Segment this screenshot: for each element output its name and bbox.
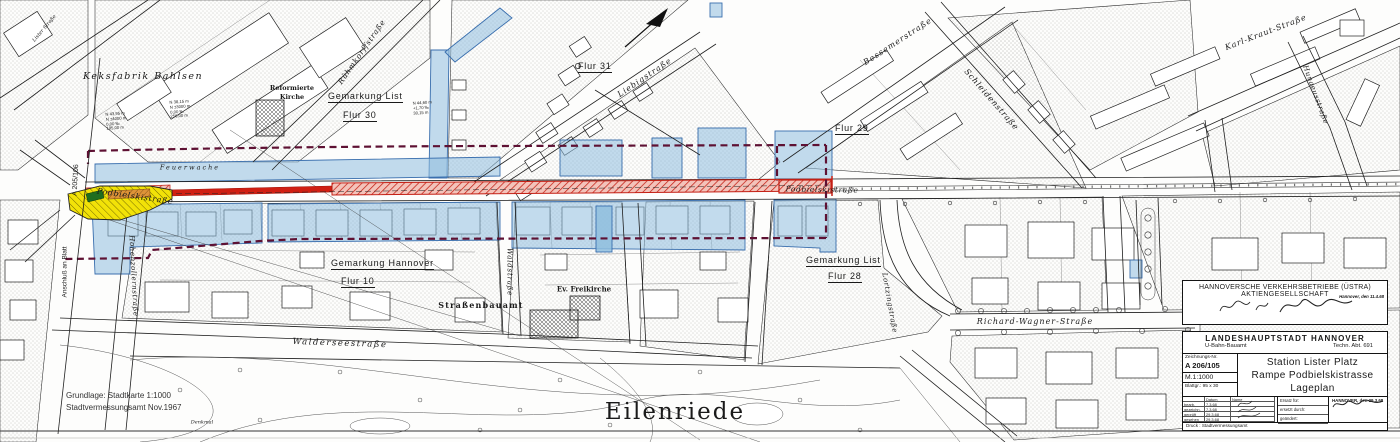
survey-annotation-1: N 43,95 mN ±4000 m 0,00 ‰195,00 m [105,111,127,132]
label-waldstrasse: Waldstraße [505,248,512,296]
label-keksfabrik: Keksfabrik Bahlsen [83,72,203,82]
title-line-1: Station Lister Platz [1238,356,1387,369]
label-gemarkung-list-nord: Gemarkung List [328,92,403,103]
label-feuerwache: Feuerwache [160,165,220,172]
label-reformierte-kirche: Reformierte [266,85,318,92]
drawing-no: A 206/105 [1183,360,1237,373]
survey-annotation-3: N 44,60 m+1,70 ‰ 30,15 m [413,100,433,116]
label-flur-30: Flur 30 [343,111,377,122]
label-flur-28: Flur 28 [828,272,862,283]
approval-signature [1329,397,1387,411]
title-line-3: Lageplan [1238,382,1387,395]
ersatz-fuer: Ersatz für: [1278,397,1328,406]
label-gemarkung-list-sued: Gemarkung List [806,256,881,267]
ustra-line1: HANNOVERSCHE VERKEHRSBETRIEBE (ÜSTRA) [1183,284,1387,291]
label-flur-29: Flur 29 [835,124,869,135]
title-block: LANDESHAUPTSTADT HANNOVER U-Bahn-Bauamt … [1182,331,1388,431]
label-podbielskistrasse-ost: Podbielskistraße [786,185,859,194]
ersetzt-durch: ersetzt durch: [1278,406,1328,415]
geaendert: geändert: [1278,415,1328,424]
eilenriede-park [60,345,960,442]
label-richard-wagner-strasse: Richard-Wagner-Straße [977,318,1093,326]
survey-annotation-2: N 38,15 mN ±3000 m 0,00 ‰256,00 m [169,99,191,120]
lageplan-sheet: Keksfabrik Bahlsen Reformierte Kirche Ge… [0,0,1400,442]
margin-grundlage: Grundlage: Stadtkarte 1:1000 [66,392,171,400]
approval-cell: HANNOVER, den 29.3.68 [1329,397,1387,422]
table-signatures [1236,398,1276,422]
ersatz-cell: Ersatz für: ersetzt durch: geändert: [1278,397,1329,422]
ustra-signatures [1210,298,1360,316]
druck-note: Druck : Stadtvermessungsamt [1183,423,1387,430]
dept-abt: Techn. Abt. 691 [1333,343,1373,349]
label-gemarkung-hannover: Gemarkung Hannover [331,259,434,270]
reformierte-kirche-building [256,100,284,136]
label-flur-31: Flur 31 [578,62,612,73]
label-flur-10: Flur 10 [341,277,375,288]
row-gesehen-date: 29.3.68 [1205,417,1231,422]
scale: M.1:1000 [1183,373,1237,383]
ustra-date-stamp: Hannover, den 11.4.68 [1339,294,1384,299]
department: U-Bahn-Bauamt [1205,343,1247,349]
label-strassenbauamt: Straßenbauamt [438,301,523,309]
ustra-approval-box: HANNOVERSCHE VERKEHRSBETRIEBE (ÜSTRA) AK… [1182,280,1388,325]
strassenbauamt-building [530,310,578,338]
tram-tracks [834,182,1400,191]
sheet-size: Blattgr.: 95 x 30 [1183,383,1237,389]
drawing-number-cell: Zeichnungs-Nr. A 206/105 M.1:1000 Blattg… [1183,354,1238,396]
title-block-header: LANDESHAUPTSTADT HANNOVER U-Bahn-Bauamt … [1183,332,1387,354]
row-gesehen-label: gesehen [1183,417,1205,422]
label-ev-freikirche: Ev. Freikirche [557,285,611,292]
label-reformierte-kirche-2: Kirche [266,94,318,101]
authority: LANDESHAUPTSTADT HANNOVER [1183,332,1387,343]
label-denkmal: Denkmal [191,420,214,425]
match-line-anschluss: Anschluß an Blatt [63,247,70,298]
drawing-title: Station Lister Platz Rampe Podbielskistr… [1238,354,1387,396]
margin-vermessung: Stadtvermessungsamt Nov.1967 [66,404,181,412]
label-eilenriede: Eilenriede [605,400,745,424]
title-line-2: Rampe Podbielskistrasse [1238,369,1387,382]
